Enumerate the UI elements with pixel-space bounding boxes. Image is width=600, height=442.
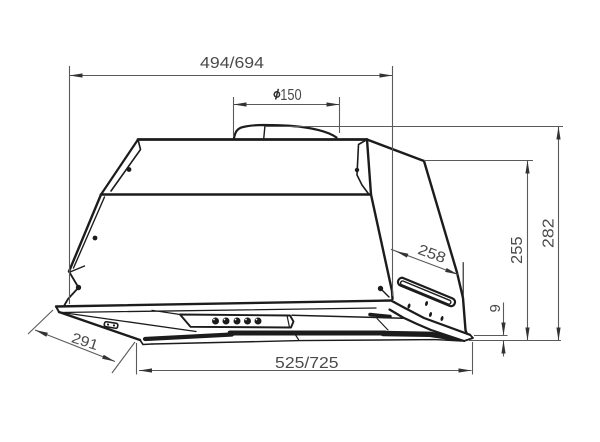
svg-text:525/725: 525/725 (275, 355, 339, 372)
svg-text:9: 9 (487, 304, 504, 312)
svg-text:282: 282 (541, 218, 558, 248)
svg-text:255: 255 (509, 236, 526, 264)
svg-text:150: 150 (280, 87, 302, 104)
svg-text:494/694: 494/694 (200, 55, 264, 72)
